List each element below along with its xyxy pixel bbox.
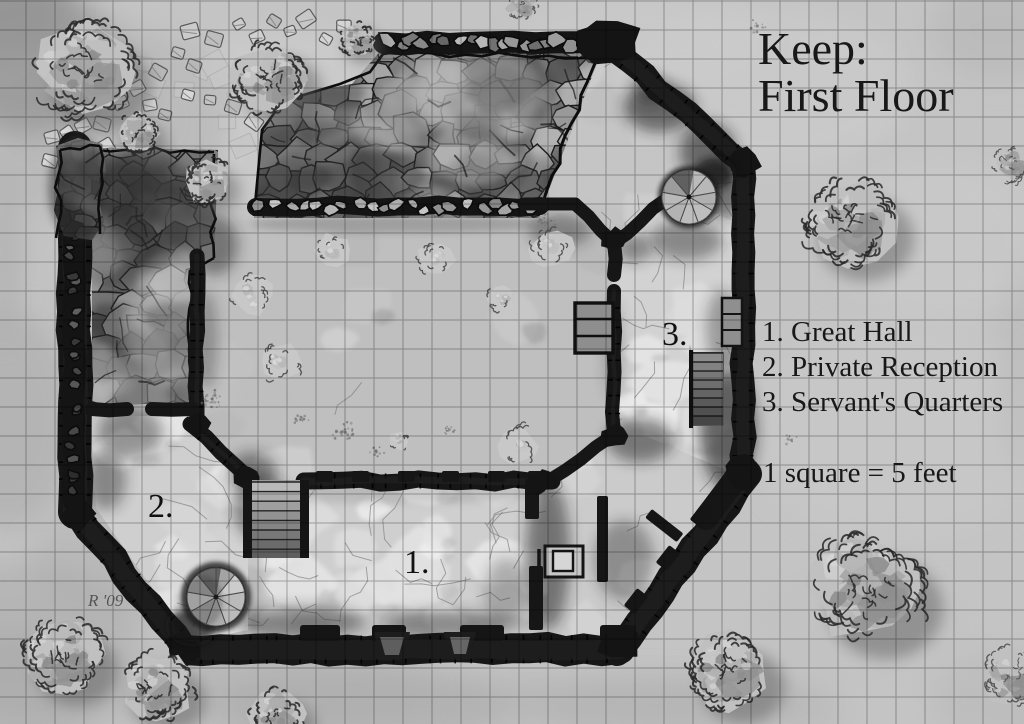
svg-text:3. Servant's Quarters: 3. Servant's Quarters xyxy=(762,386,1003,418)
svg-text:2.: 2. xyxy=(148,488,174,525)
svg-text:1 square = 5 feet: 1 square = 5 feet xyxy=(763,457,957,489)
svg-text:First Floor: First Floor xyxy=(758,70,954,121)
svg-text:1. Great Hall: 1. Great Hall xyxy=(762,316,913,348)
svg-text:3.: 3. xyxy=(662,316,688,353)
svg-text:2. Private Reception: 2. Private Reception xyxy=(762,351,998,383)
svg-text:1.: 1. xyxy=(404,544,430,581)
svg-text:Keep:: Keep: xyxy=(758,23,868,74)
svg-text:R '09: R '09 xyxy=(87,591,124,610)
